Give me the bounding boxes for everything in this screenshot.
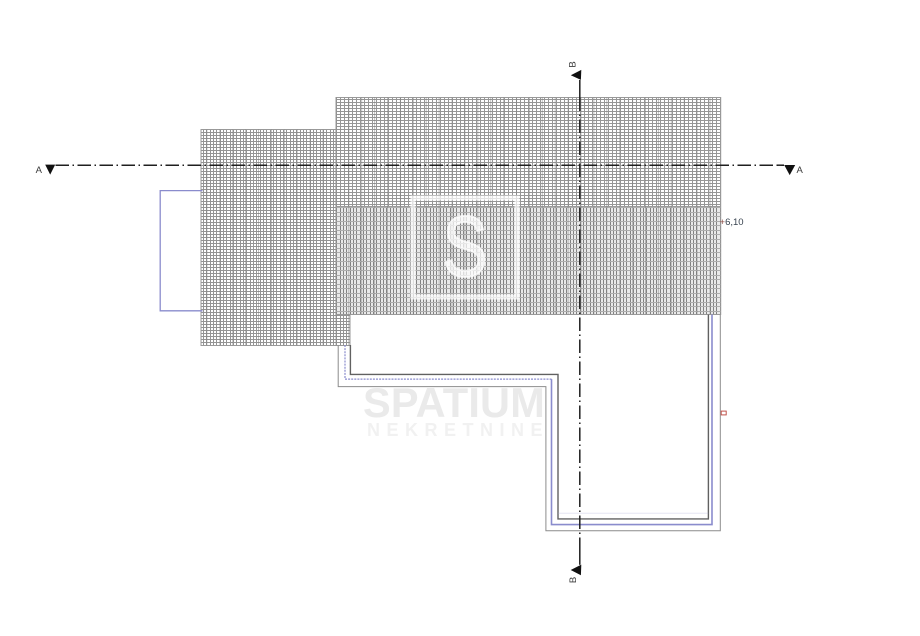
svg-text:B: B bbox=[568, 577, 579, 583]
svg-text:A: A bbox=[797, 165, 804, 176]
svg-text:S: S bbox=[443, 199, 488, 295]
svg-text:SPATIUM: SPATIUM bbox=[363, 379, 545, 426]
svg-text:NEKRETNINE: NEKRETNINE bbox=[367, 420, 549, 440]
svg-text:A: A bbox=[36, 165, 43, 176]
svg-text:+6,10: +6,10 bbox=[720, 217, 744, 228]
svg-text:B: B bbox=[567, 61, 578, 67]
